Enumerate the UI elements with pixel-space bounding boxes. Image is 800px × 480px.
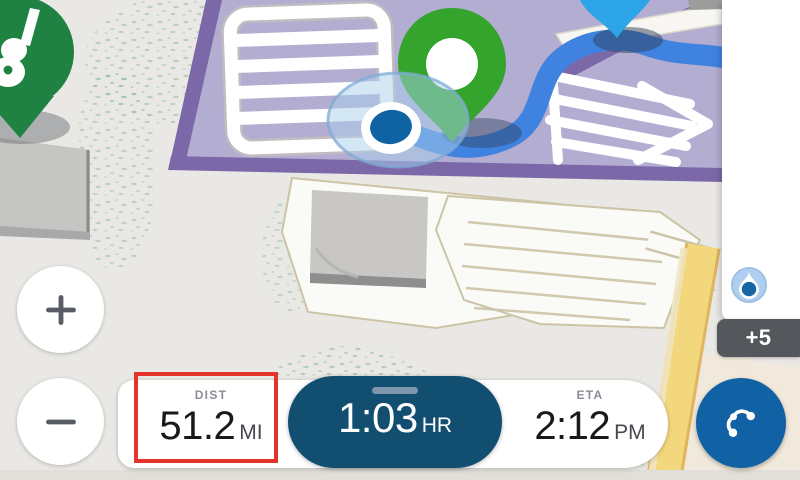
eta-field[interactable]: ETA 2:12 PM bbox=[510, 380, 670, 468]
eta-label: ETA bbox=[510, 388, 670, 402]
water-drop-glyph bbox=[739, 271, 759, 299]
zoom-in-button[interactable] bbox=[17, 266, 104, 353]
time-remaining-unit: HR bbox=[422, 414, 452, 438]
eta-unit: PM bbox=[614, 421, 646, 445]
plus-icon bbox=[36, 285, 86, 335]
route-icon bbox=[715, 397, 767, 449]
trip-status-bar: DIST 51.2 MI 1:03 HR ETA 2:12 PM bbox=[118, 380, 668, 468]
building-central bbox=[310, 190, 428, 288]
pin-shadow bbox=[593, 27, 663, 53]
minus-icon bbox=[36, 397, 86, 447]
time-remaining-pill[interactable]: 1:03 HR bbox=[288, 376, 502, 468]
drag-handle-icon[interactable] bbox=[372, 387, 418, 394]
distance-label: DIST bbox=[136, 388, 286, 402]
distance-field[interactable]: DIST 51.2 MI bbox=[136, 380, 286, 468]
distance-unit: MI bbox=[239, 421, 262, 445]
notification-count-badge[interactable]: +5 bbox=[717, 319, 800, 357]
poi-pin-green[interactable] bbox=[0, 0, 74, 144]
navigation-map-screen: +5 DIST 51.2 MI 1:03 HR bbox=[0, 0, 800, 480]
bottom-edge-strip bbox=[0, 470, 800, 480]
water-drop-icon[interactable] bbox=[731, 267, 767, 303]
zoom-out-button[interactable] bbox=[17, 378, 104, 465]
current-location-indicator bbox=[328, 73, 468, 167]
time-remaining-value: 1:03 bbox=[338, 396, 418, 440]
notification-panel[interactable] bbox=[722, 0, 800, 321]
building-left bbox=[0, 138, 90, 240]
trip-planner-button[interactable] bbox=[696, 378, 786, 468]
distance-value: 51.2 bbox=[159, 405, 235, 447]
notification-count: +5 bbox=[745, 325, 771, 351]
eta-value: 2:12 bbox=[534, 405, 610, 447]
